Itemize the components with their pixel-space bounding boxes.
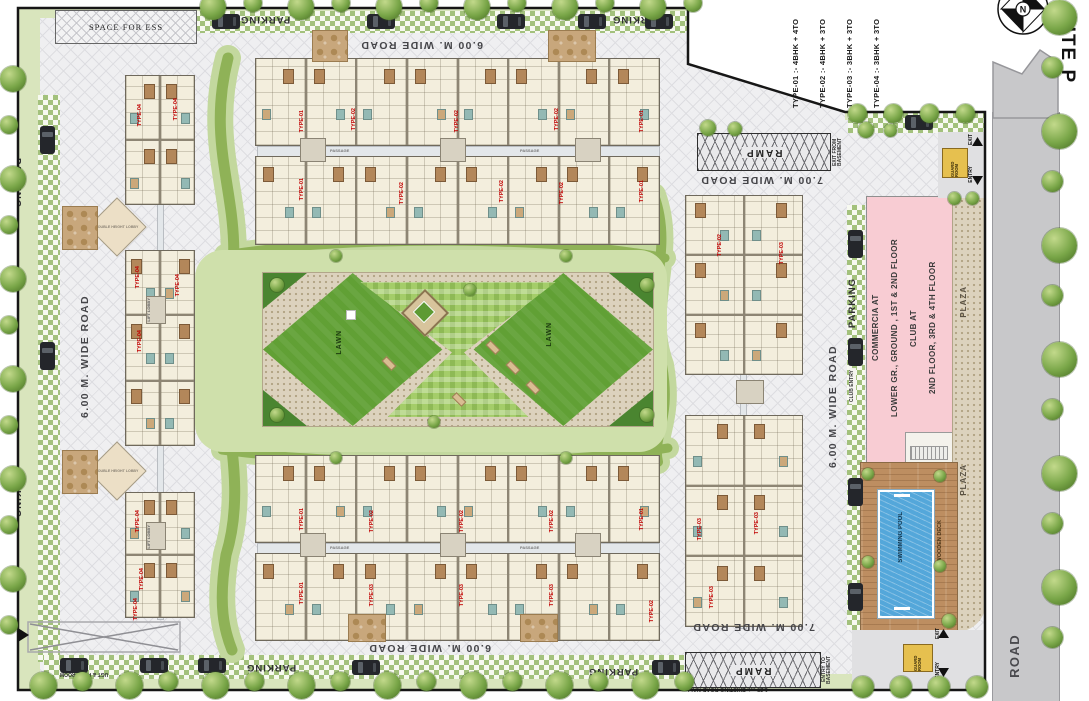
- tree-icon: [928, 676, 950, 698]
- tree-icon: [1042, 285, 1063, 306]
- tree-icon: [374, 672, 401, 699]
- tree-icon: [0, 616, 18, 634]
- tree-icon: [417, 672, 436, 691]
- tree-icon: [632, 672, 659, 699]
- tree-icon: [1042, 342, 1077, 377]
- tree-icon: [1042, 57, 1063, 78]
- tree-icon: [30, 672, 57, 699]
- tree-icon: [0, 216, 18, 234]
- tree-icon: [1042, 627, 1063, 648]
- tree-icon: [1042, 456, 1077, 491]
- tree-icon: [116, 672, 143, 699]
- tree-icon: [956, 104, 975, 123]
- site-plan: SPACE FOR ESS: [0, 0, 1089, 701]
- basement-drive-marking: [28, 622, 180, 652]
- tree-icon: [0, 116, 18, 134]
- tree-icon: [73, 672, 92, 691]
- tree-icon: [1042, 228, 1077, 263]
- tree-icon: [1042, 399, 1063, 420]
- tree-icon: [1042, 171, 1063, 192]
- north-compass-icon: N: [998, 0, 1048, 34]
- tree-icon: [0, 316, 18, 334]
- tree-icon: [852, 676, 874, 698]
- tree-icon: [288, 672, 315, 699]
- tree-icon: [1042, 114, 1077, 149]
- tree-icon: [0, 166, 26, 192]
- tree-icon: [331, 672, 350, 691]
- tree-icon: [460, 672, 487, 699]
- tree-icon: [1042, 570, 1077, 605]
- tree-icon: [202, 672, 229, 699]
- tree-icon: [0, 516, 18, 534]
- tree-icon: [159, 672, 178, 691]
- tree-icon: [848, 104, 867, 123]
- tree-icon: [589, 672, 608, 691]
- tree-icon: [0, 566, 26, 592]
- tree-icon: [884, 104, 903, 123]
- tree-icon: [0, 266, 26, 292]
- tree-icon: [503, 672, 522, 691]
- north-label: N: [1020, 5, 1027, 15]
- tree-icon: [0, 466, 26, 492]
- tree-icon: [966, 676, 988, 698]
- tree-icon: [0, 66, 26, 92]
- site-boundary: [18, 8, 985, 690]
- entry-arrow-icon: [972, 176, 983, 185]
- exit-arrow-icon: [972, 137, 983, 146]
- tree-icon: [1042, 513, 1063, 534]
- tree-icon: [546, 672, 573, 699]
- tree-icon: [1042, 0, 1077, 35]
- tree-icon: [675, 672, 694, 691]
- tree-icon: [920, 104, 939, 123]
- tree-icon: [245, 672, 264, 691]
- tree-icon: [890, 676, 912, 698]
- tree-icon: [0, 416, 18, 434]
- tree-icon: [0, 366, 26, 392]
- exit-arrow-icon: [938, 629, 949, 638]
